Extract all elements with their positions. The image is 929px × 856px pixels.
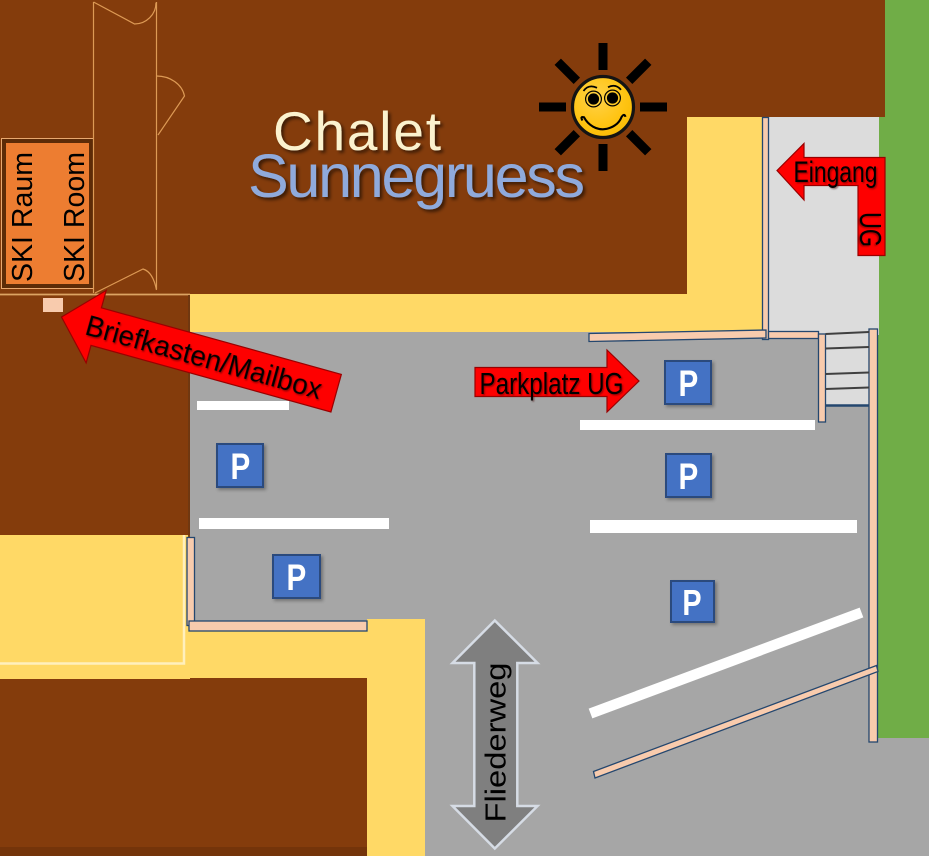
svg-text:UG: UG [853,212,888,247]
svg-text:SKI Raum: SKI Raum [7,152,39,282]
svg-text:Parkplatz UG: Parkplatz UG [480,366,624,401]
svg-text:Fliederweg: Fliederweg [481,663,513,823]
svg-text:Eingang: Eingang [794,156,878,189]
svg-text:Sunnegruess: Sunnegruess [248,142,585,210]
svg-text:Briefkasten/Mailbox: Briefkasten/Mailbox [82,310,326,406]
svg-text:SKI Room: SKI Room [59,152,91,282]
